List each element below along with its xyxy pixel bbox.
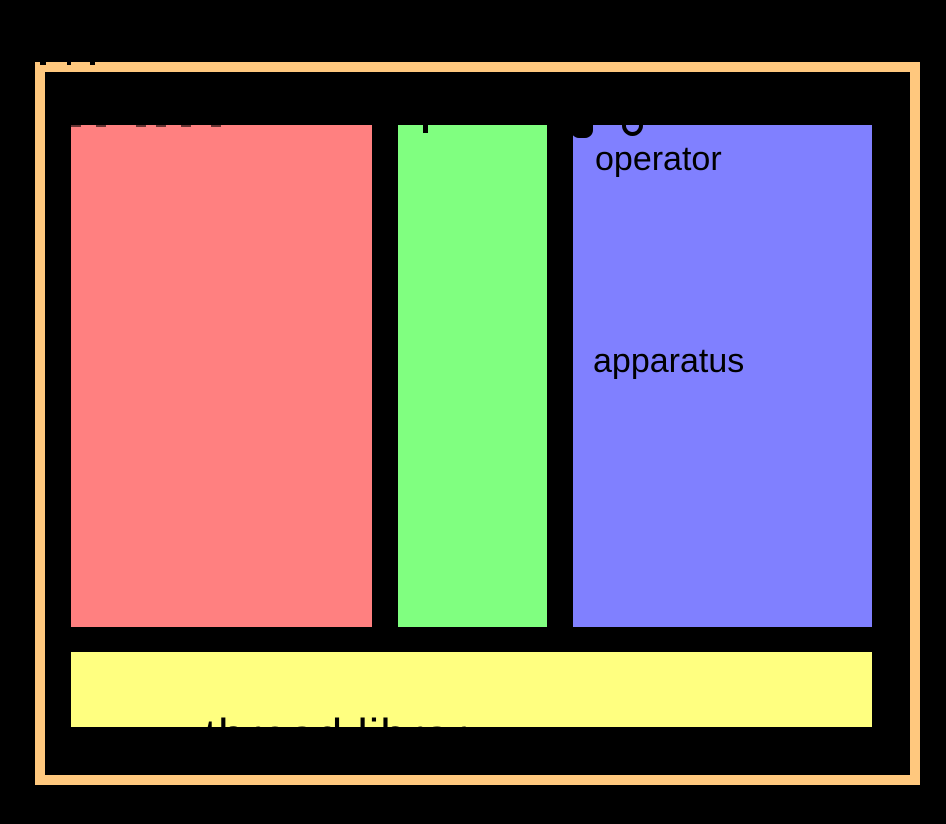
clipped-letter-bottom-fragment (156, 125, 166, 127)
clipped-letter-bottom-fragment (96, 125, 106, 127)
clipped-caption-descender-fragment (40, 61, 46, 65)
apparatus-label: apparatus (593, 344, 744, 378)
clipped-descender-stem-fragment (423, 125, 428, 133)
clipped-letter-bottom-fragment (211, 125, 221, 127)
clipped-caption-descender-fragment (67, 61, 71, 65)
clipped-letter-bottom-fragment (181, 125, 191, 127)
clipped-letter-bottom-fragment (136, 125, 146, 127)
left-column-box (71, 125, 372, 627)
clipped-letter-bottom-fragment (71, 125, 81, 127)
clipped-caption-descender-fragment (90, 61, 95, 65)
thread-library-label: thread library (204, 712, 492, 759)
middle-column-box (398, 125, 547, 627)
diagram-canvas: operator apparatus thread library (0, 0, 946, 824)
clipped-descender-bowl-fragment (571, 125, 593, 138)
operator-label: operator (595, 142, 722, 176)
